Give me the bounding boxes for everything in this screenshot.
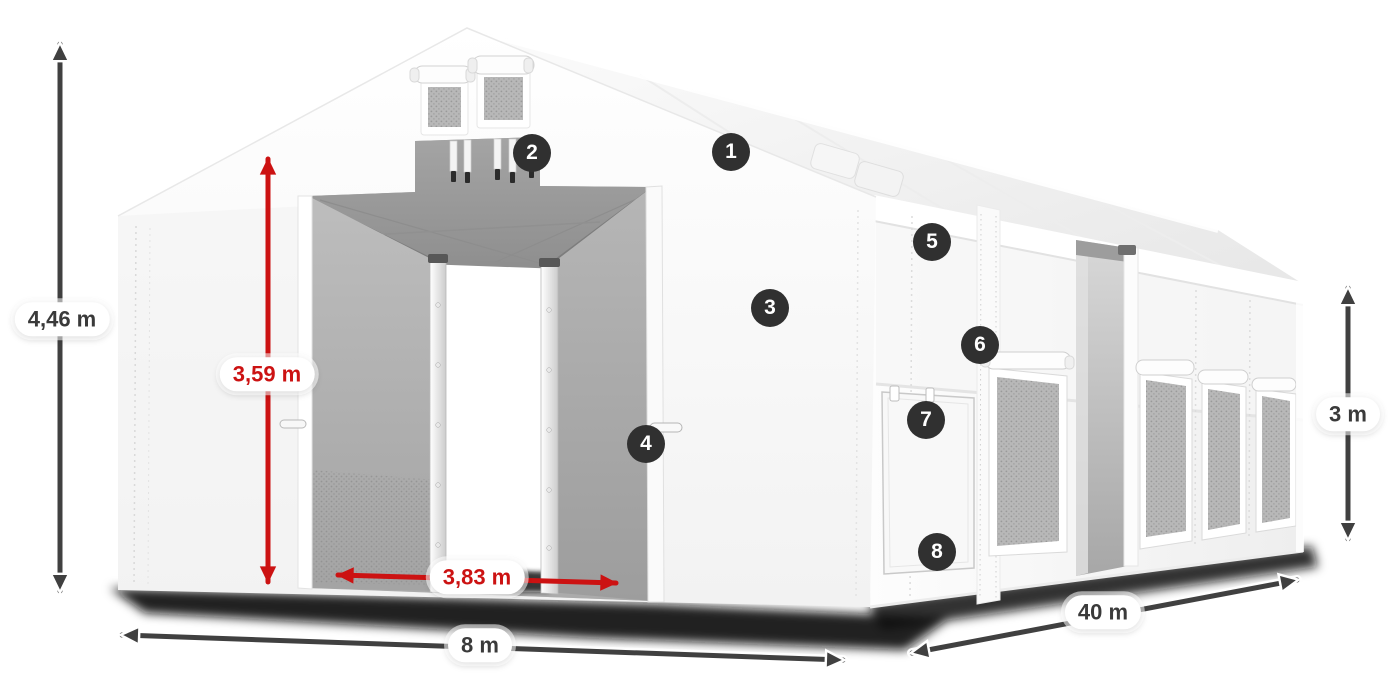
dimension-label-side-height: 3 m xyxy=(1316,397,1380,431)
marker-badge-4: 4 xyxy=(627,425,665,463)
side-doorway-open xyxy=(1076,240,1138,576)
side-window-2 xyxy=(1136,360,1194,549)
door-handle-left xyxy=(280,420,306,428)
marker-badge-2: 2 xyxy=(513,134,551,172)
dimension-label-total-height: 4,46 m xyxy=(15,302,110,336)
marker-badge-6: 6 xyxy=(961,326,999,364)
side-window-3 xyxy=(1198,370,1248,540)
tent-dimension-diagram: 4,46 m 3,59 m 3,83 m 8 m 40 m 3 m 1 2 3 … xyxy=(0,0,1400,700)
dimension-label-door-width: 3,83 m xyxy=(430,560,525,594)
tent-illustration xyxy=(0,0,1400,700)
marker-badge-5: 5 xyxy=(913,223,951,261)
side-window-4 xyxy=(1252,378,1296,532)
front-opening-interior xyxy=(308,137,652,601)
marker-badge-7: 7 xyxy=(907,401,945,439)
dimension-label-inner-height: 3,59 m xyxy=(220,357,315,391)
dimension-label-width: 8 m xyxy=(448,628,512,662)
back-doorway-opening xyxy=(437,262,549,592)
marker-badge-8: 8 xyxy=(918,533,956,571)
dimension-label-length: 40 m xyxy=(1065,595,1141,629)
window-rolled-cover xyxy=(985,352,1071,369)
marker-badge-1: 1 xyxy=(712,133,750,171)
marker-badge-3: 3 xyxy=(751,289,789,327)
gable-window-right xyxy=(468,56,534,128)
side-window-1 xyxy=(981,352,1074,556)
